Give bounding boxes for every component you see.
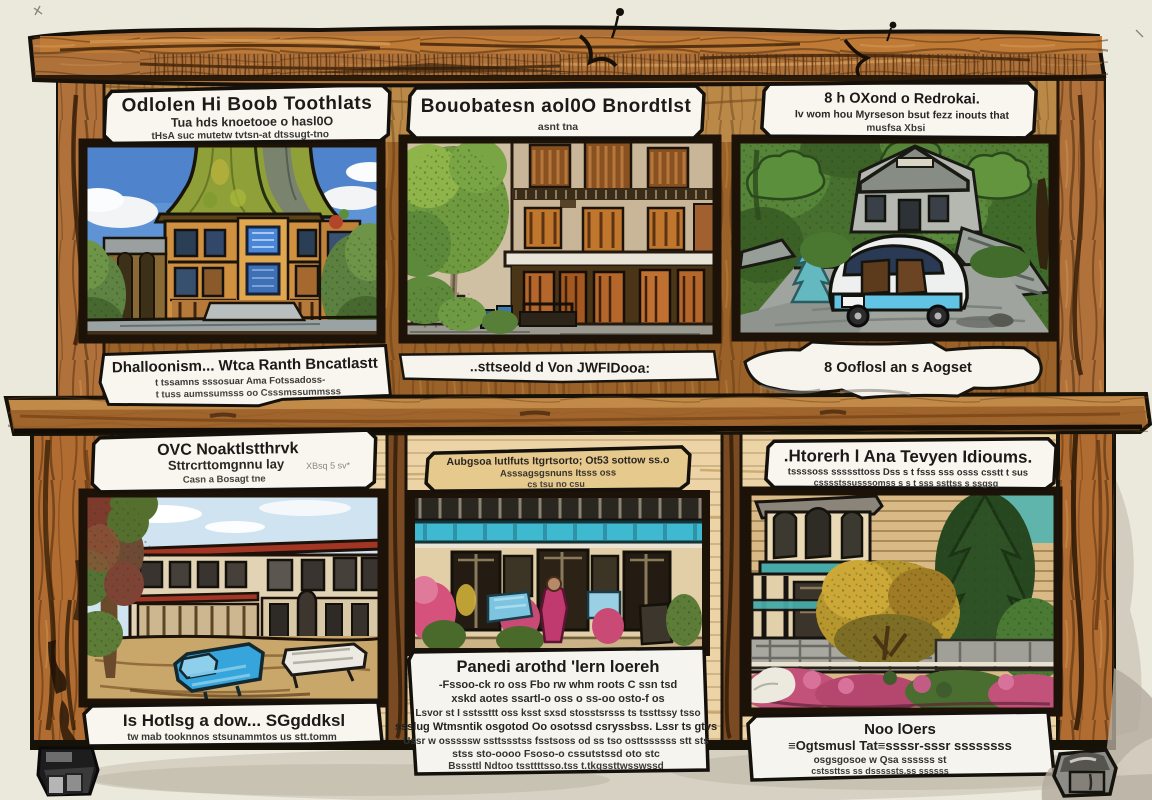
svg-text:Lsvor st I sstssttt oss ksst s: Lsvor st I sstssttt oss ksst sxsd stosst… [415,708,700,719]
svg-text:Bouobatesn aol0O Bnordtlst: Bouobatesn aol0O Bnordtlst [421,96,692,117]
svg-text:-Fssoo-ck ro oss Fbo rw whm: -Fssoo-ck ro oss Fbo rw whm roots C ssn … [439,679,677,691]
svg-text:tw mab tooknnos stsunammtos: tw mab tooknnos stsunammtos us stt.tomm [127,732,337,743]
svg-text:..sttseold d Von JWFIDooa:: ..sttseold d Von JWFIDooa: [470,358,650,376]
svg-text:Panedi arothd 'lern loereh: Panedi arothd 'lern loereh [457,658,660,676]
svg-text:ssslug Wtmsntik osgotod Oo oso: ssslug Wtmsntik osgotod Oo osotssd csrys… [395,721,717,733]
svg-text:Iv wom hou Myrseson bsut fezz: Iv wom hou Myrseson bsut fezz inouts tha… [795,108,1010,121]
svg-text:Ussr w osssssw ssttssstss fss: Ussr w osssssw ssttssstss fsstsoss od ss… [403,736,709,747]
svg-text:xskd aotes ssartl-o oss o: xskd aotes ssartl-o oss o ss-oo osto-f o… [451,693,664,705]
svg-text:.Htorerh l Ana Tevyen Idioum: .Htorerh l Ana Tevyen Idioums. [784,446,1033,466]
svg-text:Noo lOers: Noo lOers [864,721,936,738]
svg-text:Odlolen Hi Boob Toothlats: Odlolen Hi Boob Toothlats [121,93,372,117]
svg-text:Casn a Bosagt tne: Casn a Bosagt tne [183,474,266,486]
svg-text:stss sto-oooo Fsoso-o cssut: stss sto-oooo Fsoso-o cssutstssd oto stc [452,748,660,760]
svg-text:Bsssttl Ndtoo tssttttsso.tss: Bsssttl Ndtoo tssttttsso.tss t.tkgssttws… [448,761,664,772]
svg-text:cs tsu no csu: cs tsu no csu [527,479,585,490]
svg-text:osgsgosoe w Qsa ssssss: osgsgosoe w Qsa ssssss st [814,755,948,766]
svg-text:musfsa Xbsi: musfsa Xbsi [866,123,925,134]
svg-text:8 Ooflosl an s Aogset: 8 Ooflosl an s Aogset [824,360,972,376]
svg-text:XBsq 5 sv*: XBsq 5 sv* [306,460,351,471]
svg-text:asnt tna: asnt tna [538,121,578,133]
svg-text:8 h OXond o Redrokai.: 8 h OXond o Redrokai. [824,90,980,107]
svg-text:cstssttss ss dsssssts.ss ss: cstssttss ss dsssssts.ss ssssss [811,766,949,776]
svg-text:Is Hotlsg a dow... SGgddksl: Is Hotlsg a dow... SGgddksl [123,711,345,730]
svg-text:Aubgsoa lutlfuts Itgrtsorto;: Aubgsoa lutlfuts Itgrtsorto; Ot53 sottow… [446,454,669,468]
svg-text:Sttrcrttomgnnu lay: Sttrcrttomgnnu lay [168,456,285,473]
svg-text:tHsA suc mutetw tvtsn-at d: tHsA suc mutetw tvtsn-at dtssugt-tno [151,129,329,142]
svg-text:≡Ogtsmusl Tat≡ssssr-sssr ssss: ≡Ogtsmusl Tat≡ssssr-sssr ssssssss [788,738,1012,753]
svg-text:Asssagsgsnuns Itsss oss: Asssagsgsnuns Itsss oss [500,468,616,480]
svg-text:Tua hds knoetooe o hasl0O: Tua hds knoetooe o hasl0O [171,114,334,130]
svg-text:csssstssusssomss s s t sss: csssstssusssomss s s t sss ssttss s ssgs… [814,477,999,488]
